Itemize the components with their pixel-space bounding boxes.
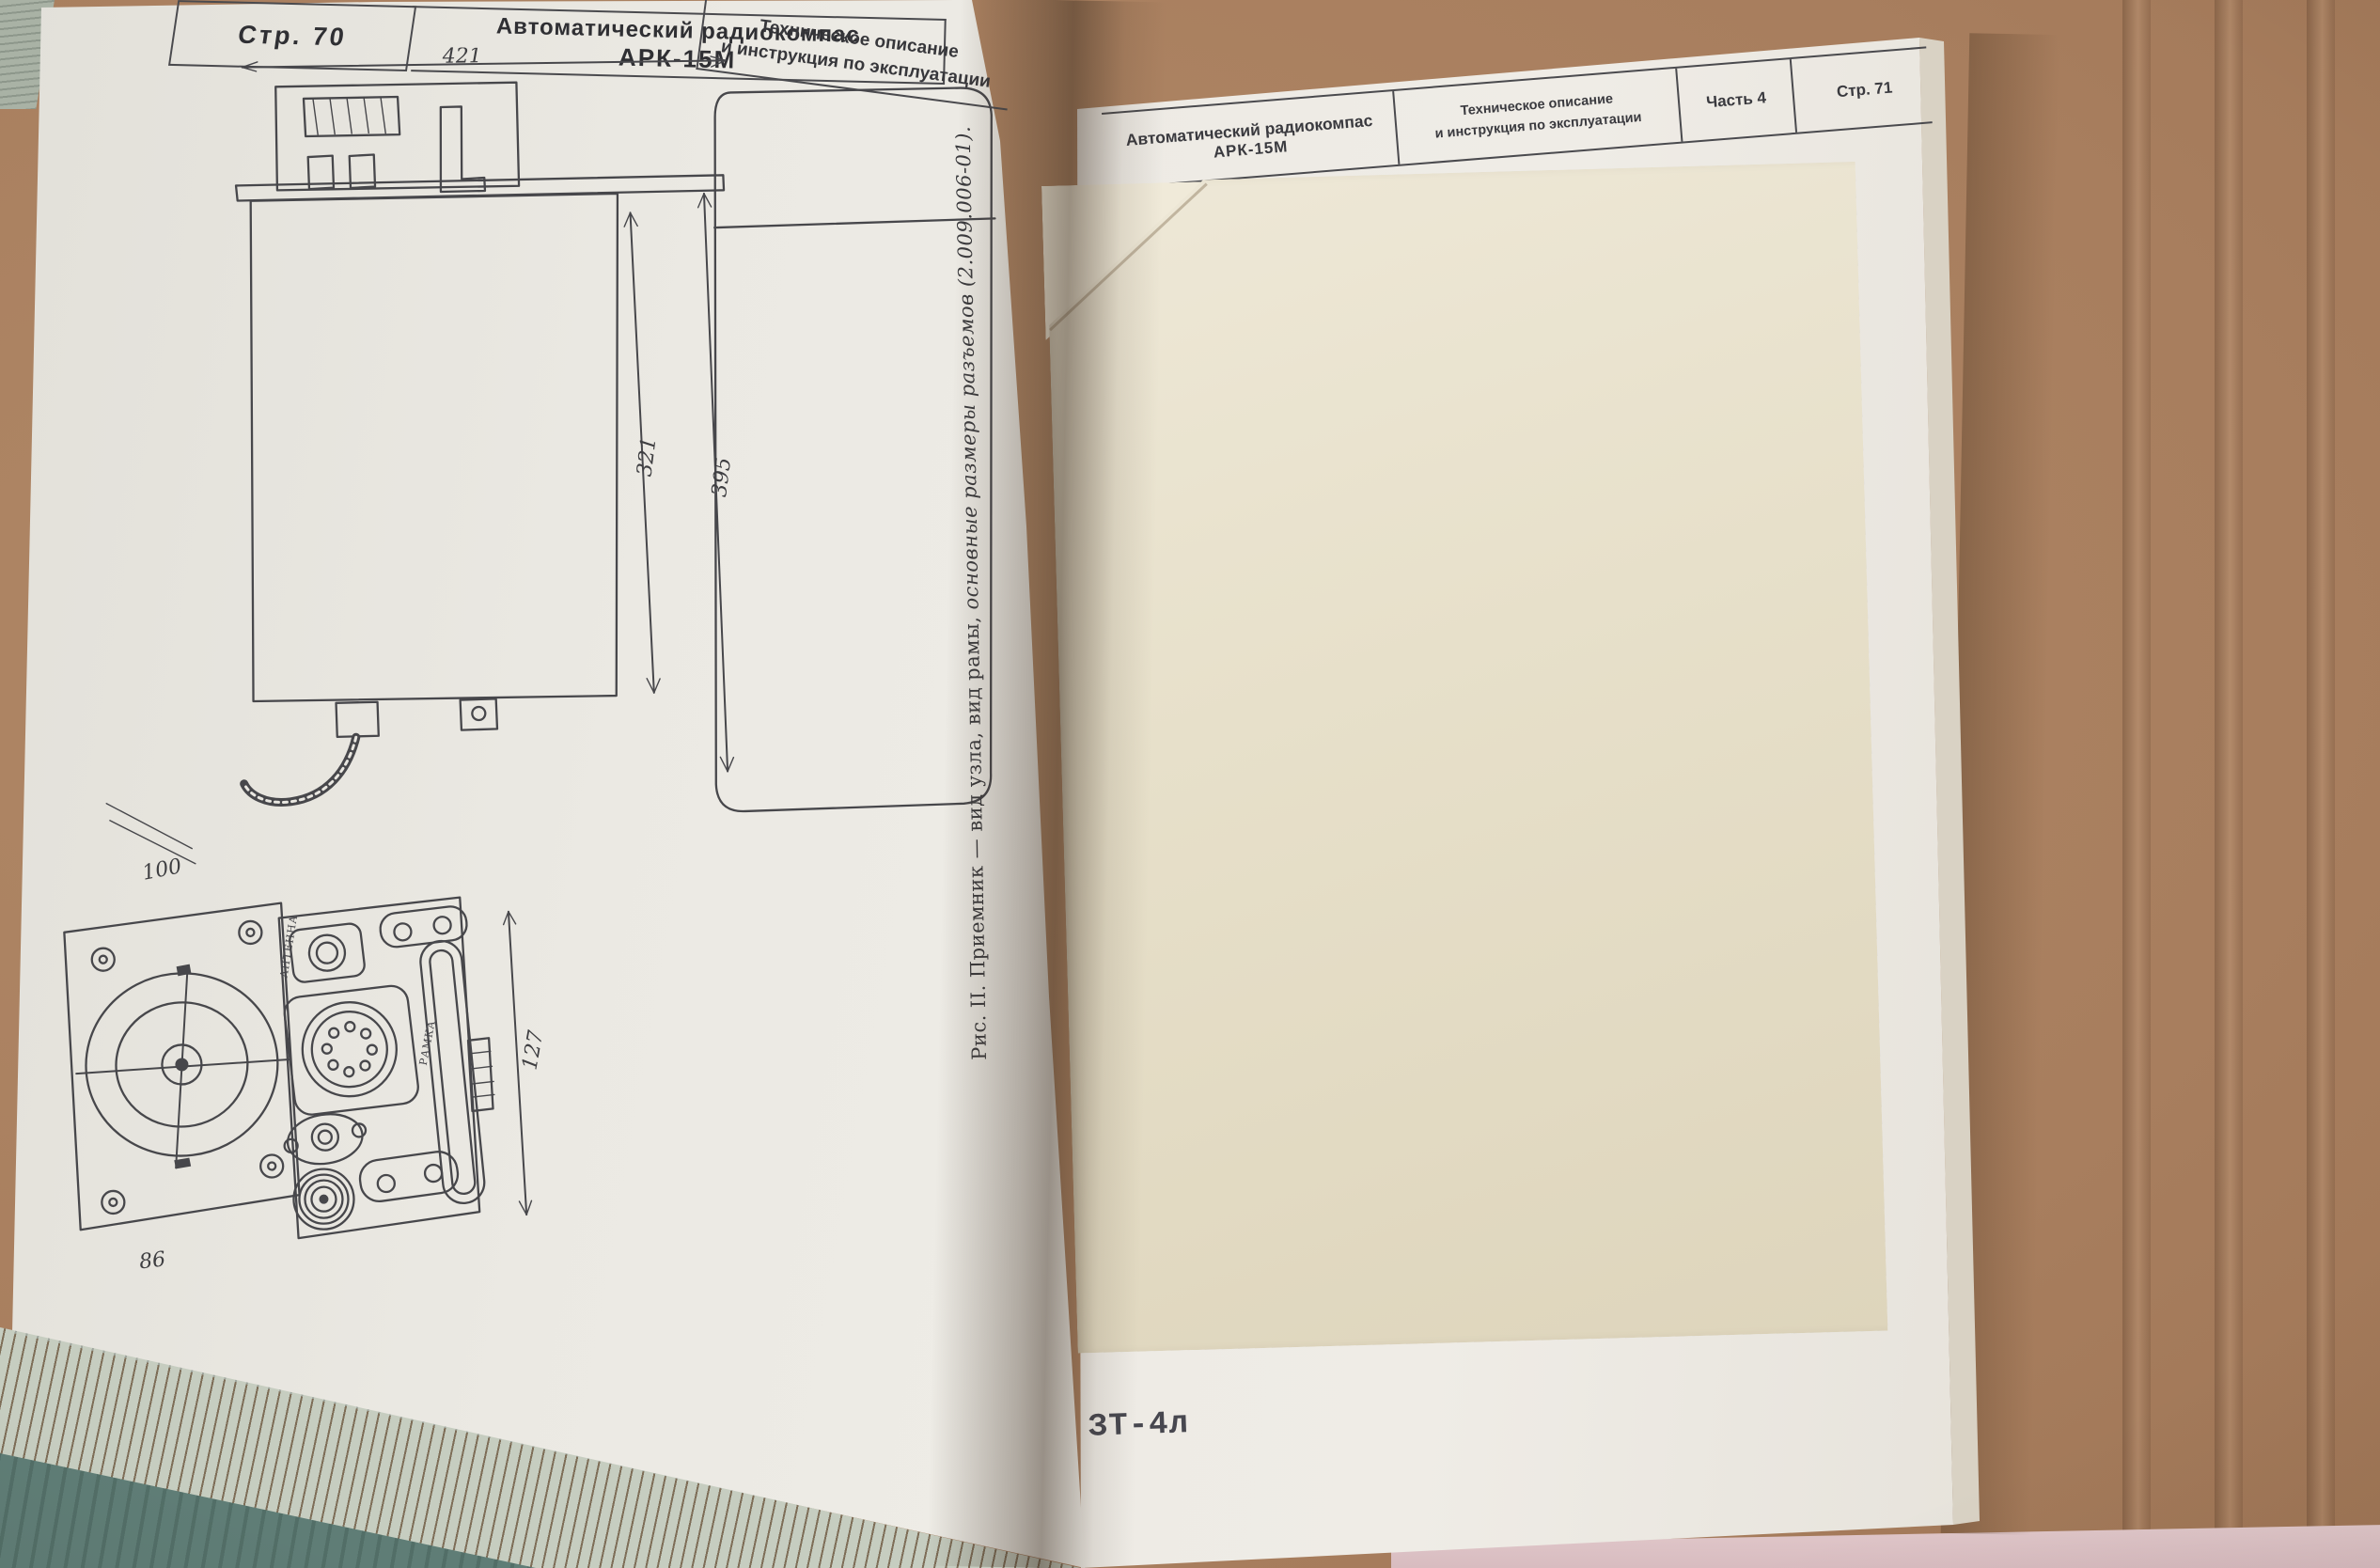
dim-panel-width: 86 — [138, 1247, 167, 1274]
right-header-part-cell: Часть 4 — [1675, 59, 1795, 142]
cardboard-crease — [2307, 0, 2335, 1568]
open-book-photo: Автоматический радиокомпас АРК-15М Техни… — [0, 0, 2380, 1568]
dim-panel-height: 127 — [518, 1028, 548, 1072]
cardboard-crease — [2215, 0, 2243, 1568]
label-loop-connector: РАМКА — [417, 1019, 438, 1066]
dim-bottom-width: 100 — [140, 855, 183, 885]
insert-sheet — [1045, 162, 1887, 1354]
dim-inner-height: 321 — [634, 436, 662, 478]
right-header-page-cell: Стр. 71 — [1790, 48, 1938, 133]
dim-outer-height: 395 — [708, 456, 736, 498]
book-gutter-shadow — [928, 0, 1167, 1568]
cardboard-crease — [2122, 0, 2151, 1568]
dim-top-width: 421 — [442, 44, 482, 69]
technical-drawings: 421 321 395 100 127 86 АНТЕННА РАМКА — [41, 39, 1008, 1328]
